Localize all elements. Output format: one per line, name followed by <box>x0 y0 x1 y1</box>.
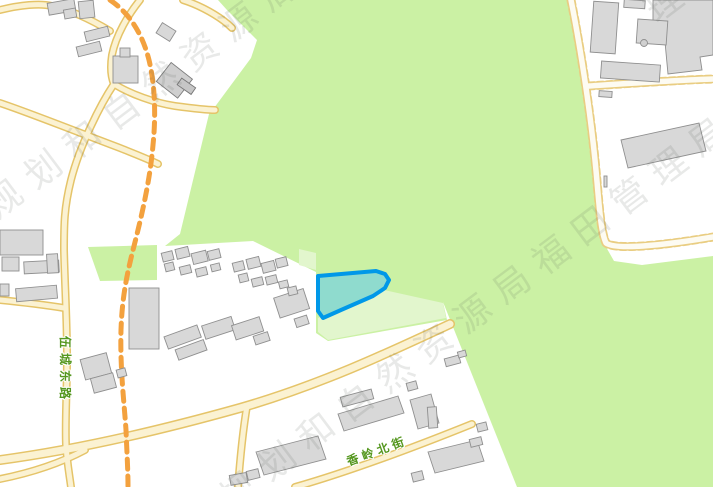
building <box>202 316 236 339</box>
building <box>265 275 278 285</box>
building <box>78 0 95 18</box>
building <box>238 273 249 283</box>
building <box>275 257 288 268</box>
building <box>590 1 618 54</box>
building <box>156 23 176 42</box>
building <box>246 469 260 481</box>
building <box>191 250 208 264</box>
building <box>469 437 483 448</box>
building <box>156 63 192 99</box>
building <box>256 436 326 475</box>
building <box>120 48 130 57</box>
building <box>129 288 159 349</box>
map-layers <box>0 0 713 487</box>
building <box>641 40 648 47</box>
building <box>0 230 43 255</box>
building <box>161 251 174 262</box>
building <box>600 61 660 82</box>
building <box>251 277 264 287</box>
building <box>411 471 424 482</box>
building <box>210 263 220 272</box>
building <box>287 286 298 296</box>
building <box>246 256 261 269</box>
building <box>84 26 110 42</box>
building <box>261 260 276 273</box>
building <box>116 368 127 378</box>
building <box>476 422 488 432</box>
building <box>229 473 247 486</box>
building <box>604 176 607 187</box>
building <box>179 265 192 275</box>
building <box>232 261 245 272</box>
map-canvas[interactable]: 伍城东路 香岭北街 规划和自然资源局福田管理局 规划和自然资源局福田管理局 理局 <box>0 0 713 487</box>
park-area-tail <box>88 245 157 281</box>
building <box>76 41 102 57</box>
building <box>63 8 76 19</box>
building <box>621 123 706 168</box>
building <box>406 381 418 391</box>
building <box>175 246 190 259</box>
building <box>278 280 288 289</box>
building <box>2 257 19 271</box>
building <box>294 315 309 328</box>
building <box>47 254 59 274</box>
building <box>624 0 646 9</box>
building <box>113 56 138 83</box>
building <box>207 249 221 261</box>
building <box>0 284 9 296</box>
building <box>427 407 437 429</box>
building <box>599 91 612 98</box>
building <box>16 285 58 302</box>
building <box>340 389 373 407</box>
building <box>164 262 175 272</box>
building <box>195 267 208 277</box>
